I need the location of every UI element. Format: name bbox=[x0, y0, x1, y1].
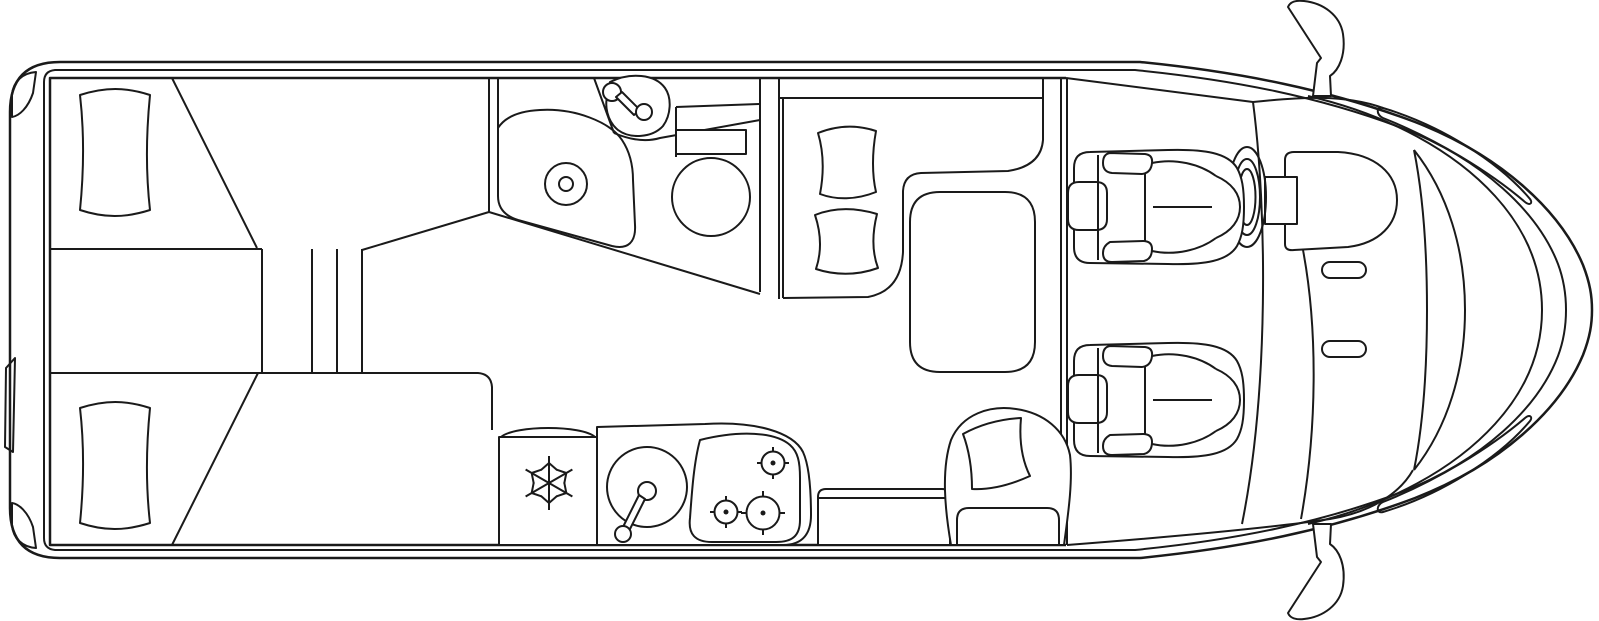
shower-tray bbox=[498, 110, 635, 247]
floorplan-canvas bbox=[0, 0, 1599, 621]
side-mirror-bottom bbox=[1288, 524, 1344, 619]
bed-bottom-diagonal bbox=[172, 373, 258, 545]
steps-to-bathroom-diagonal bbox=[362, 212, 489, 250]
steering-column bbox=[1265, 177, 1297, 224]
armchair-seat-cushion bbox=[957, 508, 1059, 545]
rear-light-bottom bbox=[12, 503, 36, 548]
side-mirror-top bbox=[1288, 1, 1344, 96]
cab bbox=[1066, 78, 1413, 545]
a-pillar-window-bottom bbox=[1378, 416, 1531, 512]
windshield-glass-lens bbox=[1414, 150, 1465, 470]
lounge bbox=[818, 408, 1071, 545]
armchair-pillow bbox=[963, 418, 1030, 489]
rear-bedroom bbox=[50, 78, 492, 545]
toilet-cistern bbox=[676, 130, 746, 154]
sink-faucet-knob bbox=[615, 526, 631, 542]
rear-light-top bbox=[12, 72, 36, 117]
basin-drain bbox=[636, 104, 652, 120]
bed-top-diagonal bbox=[172, 78, 257, 248]
dash-vent-lower bbox=[1322, 341, 1366, 357]
fridge-lid-arc bbox=[501, 428, 595, 437]
driver-seat bbox=[1068, 150, 1244, 264]
dashboard bbox=[1285, 152, 1397, 250]
toilet-bowl bbox=[672, 158, 750, 236]
dinette-cushion-2 bbox=[815, 209, 878, 274]
seat-headrest bbox=[1068, 182, 1107, 230]
a-pillar-window-top bbox=[1378, 108, 1531, 204]
bed-pillow-top bbox=[80, 89, 150, 216]
seat-bolster-bottom bbox=[1103, 241, 1152, 262]
mirrors bbox=[1288, 1, 1344, 620]
motorhome-floorplan bbox=[0, 0, 1599, 621]
side-bench bbox=[818, 489, 950, 545]
hob-panel bbox=[690, 434, 800, 542]
cab-side-line-right bbox=[1301, 250, 1314, 519]
bathroom bbox=[489, 76, 779, 299]
cab-side-line-left bbox=[1242, 102, 1263, 524]
bed-pillow-bottom bbox=[80, 402, 150, 529]
dinette-table bbox=[910, 192, 1035, 372]
dinette-cushion-1 bbox=[818, 127, 876, 199]
dash-vent-upper bbox=[1322, 262, 1366, 278]
seat-bolster-top bbox=[1103, 153, 1152, 174]
passenger-seat bbox=[1068, 343, 1244, 457]
kitchen bbox=[492, 387, 811, 545]
